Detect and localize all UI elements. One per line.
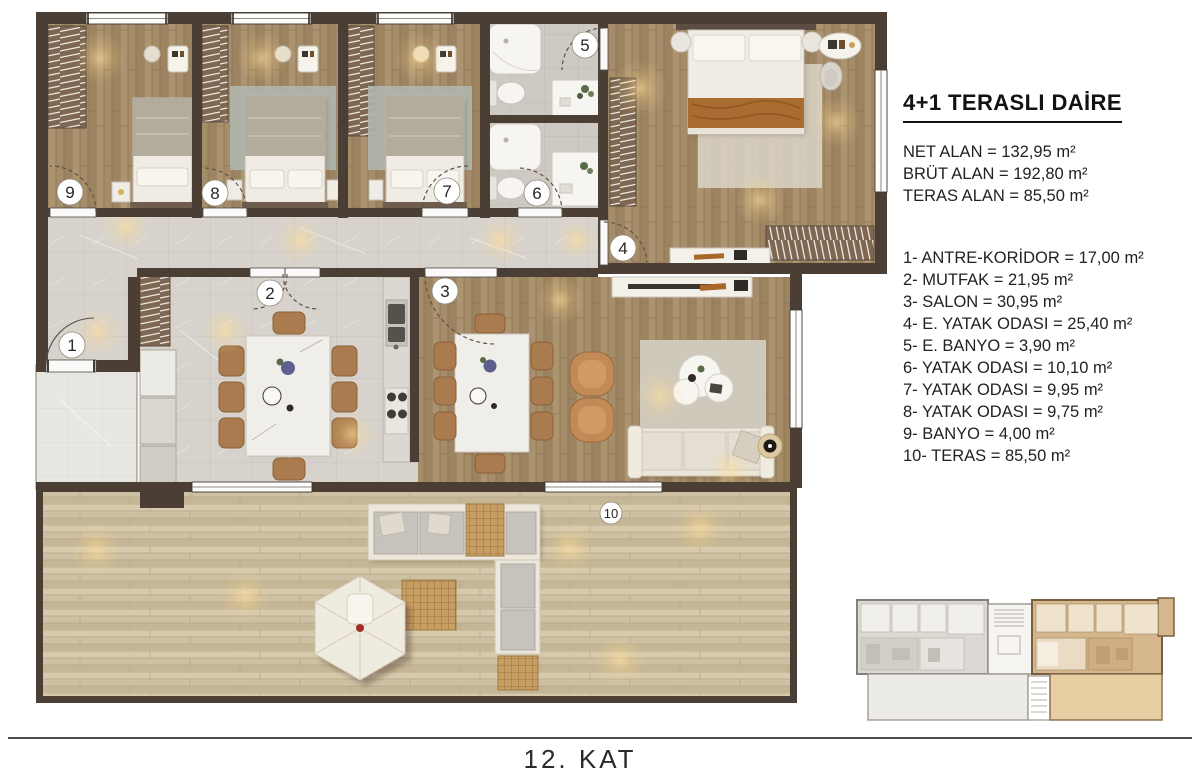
gross-area: BRÜT ALAN = 192,80 m² bbox=[903, 163, 1195, 185]
wardrobe-icon bbox=[202, 26, 228, 122]
room-label-4: 4 bbox=[618, 239, 627, 258]
terrace-area: TERAS ALAN = 85,50 m² bbox=[903, 185, 1195, 207]
pillow bbox=[427, 513, 451, 535]
room-list-item: 1- ANTRE-KORİDOR = 17,00 m² bbox=[903, 247, 1195, 269]
shower-icon bbox=[489, 24, 541, 74]
room-list-item: 10- TERAS = 85,50 m² bbox=[903, 445, 1195, 467]
nightstand-icon bbox=[369, 180, 383, 200]
net-area: NET ALAN = 132,95 m² bbox=[903, 141, 1195, 163]
nightstand-icon bbox=[671, 32, 691, 52]
toilet-icon bbox=[497, 82, 525, 104]
room-list-item: 3- SALON = 30,95 m² bbox=[903, 291, 1195, 313]
floor-plan: 1 2 3 4 5 6 7 8 9 10 bbox=[0, 0, 900, 730]
room-list-item: 4- E. YATAK ODASI = 25,40 m² bbox=[903, 313, 1195, 335]
bed-blanket bbox=[133, 98, 192, 156]
room-label-10: 10 bbox=[604, 506, 618, 521]
room-label-6: 6 bbox=[532, 184, 541, 203]
room-label-2: 2 bbox=[265, 284, 274, 303]
minimap-stair-shaft bbox=[1028, 676, 1050, 720]
nightstand-icon bbox=[227, 180, 242, 200]
toilet-icon bbox=[497, 177, 525, 199]
sofa-icon bbox=[628, 426, 774, 478]
lattice-table-icon bbox=[466, 504, 504, 556]
lattice-table-icon bbox=[498, 656, 538, 690]
headboard bbox=[242, 202, 328, 208]
plan-title: 4+1 TERASLI DAİRE bbox=[903, 90, 1122, 123]
headboard bbox=[383, 202, 467, 208]
bed-blanket bbox=[688, 98, 804, 128]
room-list-item: 6- YATAK ODASI = 10,10 m² bbox=[903, 357, 1195, 379]
pillow bbox=[250, 170, 284, 188]
floor-label: 12. KAT bbox=[0, 744, 1160, 775]
cabinet-icon bbox=[140, 398, 176, 444]
entry-door-threshold bbox=[46, 360, 96, 372]
toilet-tank bbox=[489, 176, 497, 200]
sink-icon bbox=[552, 80, 600, 116]
exterior-lobby-floor bbox=[36, 365, 137, 489]
pillow bbox=[693, 35, 745, 61]
room-list-item: 8- YATAK ODASI = 9,75 m² bbox=[903, 401, 1195, 423]
floor-lamp-icon bbox=[758, 434, 782, 458]
room-list-item: 7- YATAK ODASI = 9,95 m² bbox=[903, 379, 1195, 401]
minimap-right-unit bbox=[1032, 598, 1174, 674]
minimap-left-unit bbox=[857, 600, 988, 674]
footer-divider bbox=[8, 737, 1192, 739]
room-label-1: 1 bbox=[67, 336, 76, 355]
area-stats: NET ALAN = 132,95 m² BRÜT ALAN = 192,80 … bbox=[903, 141, 1195, 207]
room-list: 1- ANTRE-KORİDOR = 17,00 m² 2- MUTFAK = … bbox=[903, 247, 1195, 467]
room-label-7: 7 bbox=[442, 182, 451, 201]
pillow bbox=[749, 35, 801, 61]
cabinet-icon bbox=[140, 446, 176, 486]
room-label-9: 9 bbox=[65, 183, 74, 202]
room-list-item: 9- BANYO = 4,00 m² bbox=[903, 423, 1195, 445]
shower-icon bbox=[489, 124, 541, 170]
pantry-shelf-icon bbox=[140, 274, 170, 346]
room-list-item: 5- E. BANYO = 3,90 m² bbox=[903, 335, 1195, 357]
info-panel: 4+1 TERASLI DAİRE NET ALAN = 132,95 m² B… bbox=[903, 90, 1195, 467]
pillow bbox=[288, 170, 322, 188]
pillow bbox=[391, 170, 423, 188]
dining-table-icon bbox=[246, 336, 330, 456]
toilet-tank bbox=[489, 80, 497, 106]
wall-unit-icon bbox=[168, 46, 188, 72]
room-list-item: 2- MUTFAK = 21,95 m² bbox=[903, 269, 1195, 291]
wall-unit-icon bbox=[298, 46, 318, 72]
dining-table-icon bbox=[455, 334, 529, 452]
minimap-left-terrace bbox=[868, 674, 1028, 720]
building-overview-minimap bbox=[852, 592, 1200, 728]
minimap-core bbox=[988, 604, 1032, 674]
wardrobe-icon bbox=[766, 226, 874, 260]
room-label-8: 8 bbox=[210, 184, 219, 203]
floor-plan-page: 1 2 3 4 5 6 7 8 9 10 4+1 TERASLI DAİRE N… bbox=[0, 0, 1200, 782]
room-label-5: 5 bbox=[580, 36, 589, 55]
pillow bbox=[378, 512, 405, 536]
sconce-icon bbox=[144, 46, 160, 62]
cabinet-icon bbox=[140, 350, 176, 396]
pillow bbox=[137, 168, 188, 186]
minimap-right-terrace bbox=[1050, 674, 1162, 720]
room-label-3: 3 bbox=[440, 282, 449, 301]
